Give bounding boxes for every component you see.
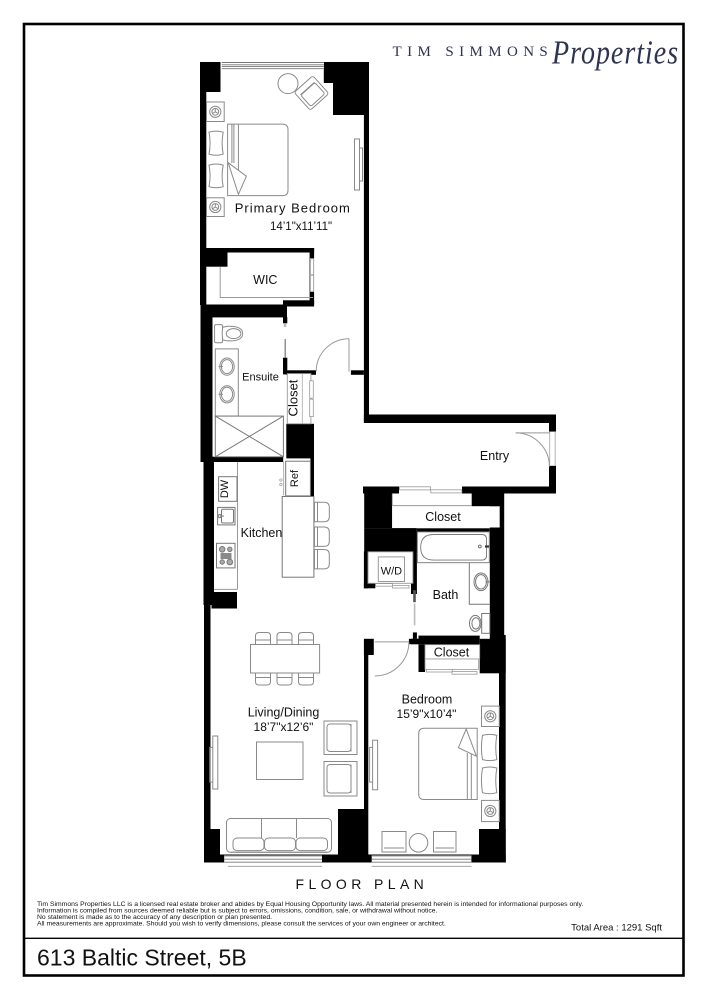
svg-text:Entry: Entry (480, 449, 510, 463)
svg-text:Primary Bedroom: Primary Bedroom (235, 201, 351, 216)
svg-text:Properties: Properties (551, 33, 679, 71)
svg-text:Closet: Closet (286, 379, 301, 416)
svg-text:FLOOR PLAN: FLOOR PLAN (296, 876, 429, 892)
svg-text:Closet: Closet (425, 510, 461, 524)
svg-text:Closet: Closet (434, 645, 470, 659)
svg-text:613 Baltic Street, 5B: 613 Baltic Street, 5B (37, 945, 247, 971)
svg-text:15’9"x10’4": 15’9"x10’4" (397, 707, 457, 721)
svg-text:14’1"x11’11": 14’1"x11’11" (270, 221, 332, 233)
svg-text:All measurements are approxima: All measurements are approximate. Should… (37, 921, 446, 928)
svg-text:WIC: WIC (253, 273, 277, 287)
svg-text:18’7"x12’6": 18’7"x12’6" (254, 720, 314, 734)
svg-text:TIM SIMMONS: TIM SIMMONS (393, 44, 554, 60)
svg-text:Living/Dining: Living/Dining (248, 706, 320, 720)
svg-text:Kitchen: Kitchen (241, 526, 283, 540)
svg-text:Total Area : 1291 Sqft: Total Area : 1291 Sqft (571, 923, 662, 934)
svg-text:Bath: Bath (433, 588, 459, 602)
svg-text:Ensuite: Ensuite (242, 372, 279, 384)
svg-text:Bedroom: Bedroom (402, 693, 453, 707)
svg-text:Ref: Ref (289, 469, 301, 487)
svg-text:DW: DW (219, 479, 231, 498)
svg-text:W/D: W/D (381, 566, 402, 578)
